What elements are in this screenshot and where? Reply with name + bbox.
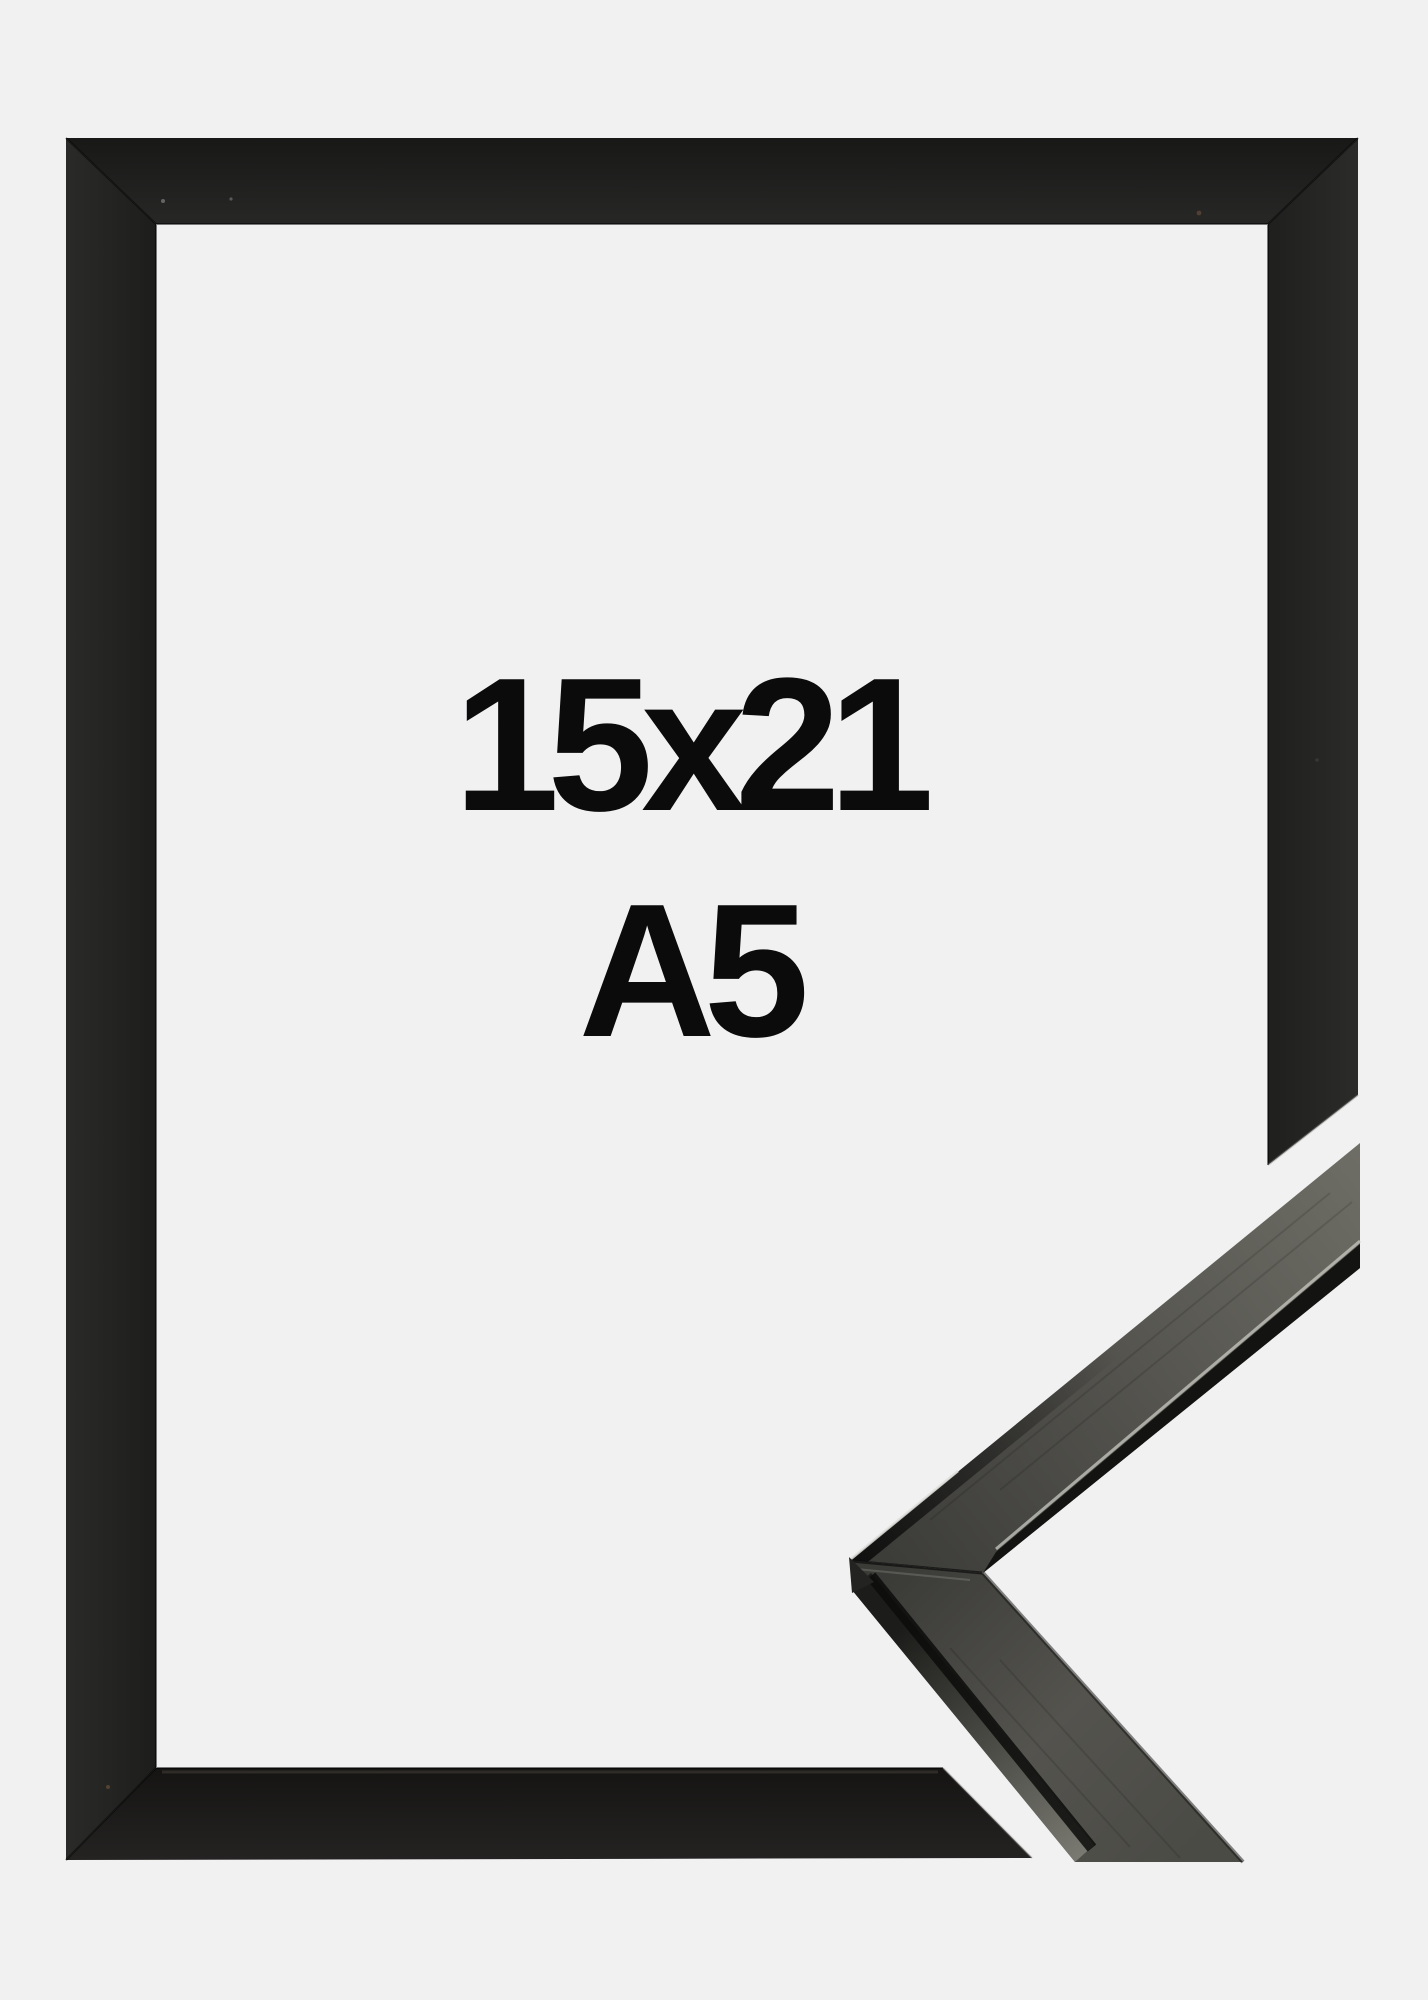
frame-illustration: 15x21 A5: [0, 0, 1428, 2000]
frame-rail-right: [1268, 138, 1358, 1165]
frame-rail-top: [66, 138, 1358, 224]
size-label-cm: 15x21: [454, 639, 930, 851]
frame-rail-bottom: [66, 1768, 1032, 1860]
frame-rail-left: [66, 138, 156, 1860]
size-label-format: A5: [579, 865, 805, 1077]
product-photo-frame-15x21: 15x21 A5: [0, 0, 1428, 2000]
